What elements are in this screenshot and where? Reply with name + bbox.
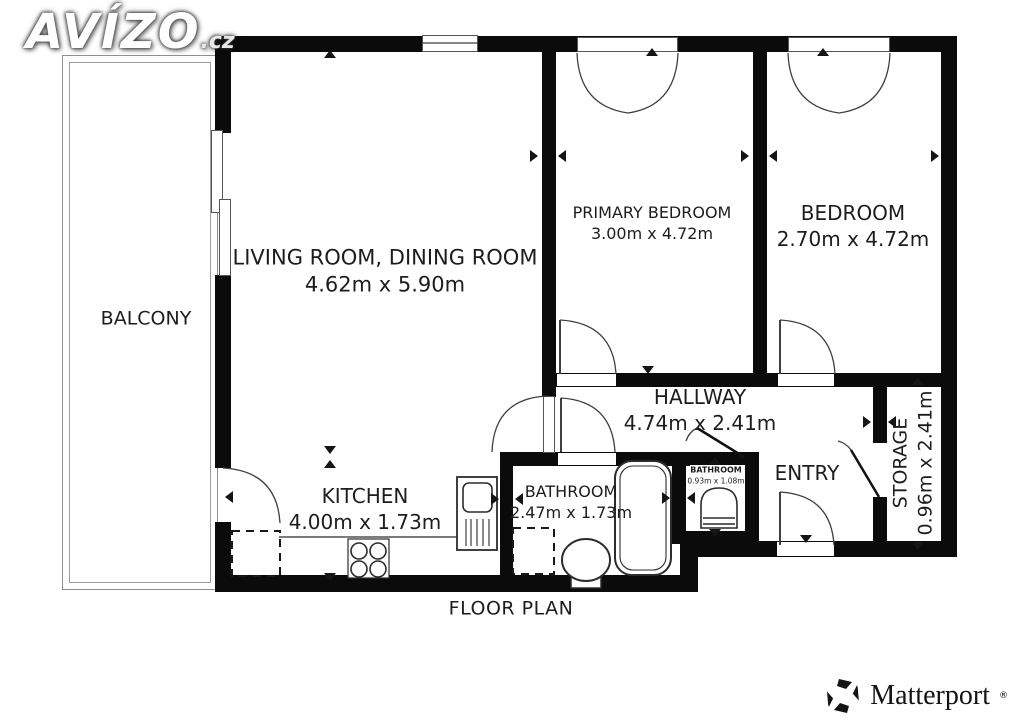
burner-icon: [351, 543, 367, 559]
label-primary-bedroom: PRIMARY BEDROOM 3.00m x 4.72m: [573, 203, 732, 245]
label-bathroom: BATHROOM 2.47m x 1.73m: [510, 482, 632, 524]
fridge-dashed-icon: [232, 531, 280, 576]
dimension-marker: [931, 150, 939, 162]
dimension-marker: [709, 457, 721, 465]
label-bedroom: BEDROOM 2.70m x 4.72m: [777, 200, 930, 252]
dimension-marker: [324, 446, 336, 454]
dimension-marker: [741, 150, 749, 162]
room-name: HALLWAY: [624, 384, 777, 410]
room-name: ENTRY: [775, 460, 840, 486]
dimension-marker: [558, 150, 566, 162]
label-living-room: LIVING ROOM, DINING ROOM 4.62m x 5.90m: [233, 245, 538, 300]
dimension-marker: [324, 460, 336, 468]
avizo-logo: AVÍZO.cz: [26, 4, 235, 60]
label-hallway: HALLWAY 4.74m x 2.41m: [624, 384, 777, 436]
room-dims: 4.74m x 2.41m: [624, 410, 777, 436]
room-dims: 4.62m x 5.90m: [233, 272, 538, 299]
dimension-marker: [912, 377, 924, 385]
door-leaf-storage: [851, 450, 879, 497]
dimension-marker: [769, 150, 777, 162]
room-name: STORAGE: [888, 391, 913, 536]
burner-icon: [351, 561, 367, 577]
washer-dashed-icon: [513, 528, 554, 574]
door-arc-storage: [838, 441, 851, 450]
door-arc-living-hall: [492, 396, 548, 452]
room-name: LIVING ROOM, DINING ROOM: [233, 245, 538, 272]
avizo-logo-suffix: .cz: [201, 29, 235, 54]
room-dims: 2.70m x 4.72m: [777, 226, 930, 252]
label-balcony: BALCONY: [101, 307, 192, 332]
label-entry: ENTRY: [775, 460, 840, 486]
dimension-marker: [324, 573, 336, 581]
dimension-marker: [642, 366, 654, 374]
room-dims: 0.96m x 2.41m: [913, 391, 938, 536]
room-name: BATHROOM: [510, 482, 632, 503]
door-arc-bedroom: [780, 320, 835, 374]
matterport-icon: [825, 678, 861, 714]
dimension-marker: [324, 50, 336, 58]
dimension-marker: [912, 542, 924, 550]
toilet-icon: [562, 539, 610, 581]
dimension-marker: [530, 150, 538, 162]
room-name: PRIMARY BEDROOM: [573, 203, 732, 224]
room-name: BEDROOM: [777, 200, 930, 226]
room-dims: 3.00m x 4.72m: [573, 224, 732, 245]
label-bathroom-small: BATHROOM 0.93m x 1.08m: [687, 466, 744, 487]
dimension-marker: [225, 491, 233, 503]
dimension-marker: [709, 529, 721, 537]
french-arc-bedroom-right: [839, 53, 890, 113]
french-arc-primary-right: [628, 53, 678, 113]
floor-plan: BALCONY LIVING ROOM, DINING ROOM 4.62m x…: [0, 0, 1024, 724]
dimension-marker: [800, 535, 812, 543]
room-name: BATHROOM: [687, 466, 744, 477]
french-arc-primary-left: [577, 53, 628, 113]
registered-mark: ®: [999, 691, 1008, 701]
toilet-small-icon: [701, 488, 737, 528]
room-name: KITCHEN: [289, 483, 442, 509]
plan-title: FLOOR PLAN: [449, 597, 574, 622]
french-arc-bedroom-left: [788, 53, 839, 113]
room-dims: 2.47m x 1.73m: [510, 503, 632, 524]
burner-icon: [370, 561, 386, 577]
room-dims: 0.93m x 1.08m: [687, 476, 744, 486]
room-dims: 4.00m x 1.73m: [289, 509, 442, 535]
dimension-marker: [646, 48, 658, 56]
burner-icon: [370, 543, 386, 559]
door-arc-primary: [560, 320, 616, 374]
matterport-wordmark: Matterport: [870, 680, 990, 712]
dimension-marker: [817, 48, 829, 56]
sink-basin-icon: [463, 483, 492, 512]
door-arc-bathroom: [561, 398, 615, 452]
label-kitchen: KITCHEN 4.00m x 1.73m: [289, 483, 442, 535]
dimension-marker: [863, 416, 871, 428]
label-storage: STORAGE 0.96m x 2.41m: [888, 391, 937, 536]
dimension-marker: [687, 492, 695, 504]
room-name: BALCONY: [101, 307, 192, 332]
matterport-logo: Matterport®: [825, 678, 1008, 714]
